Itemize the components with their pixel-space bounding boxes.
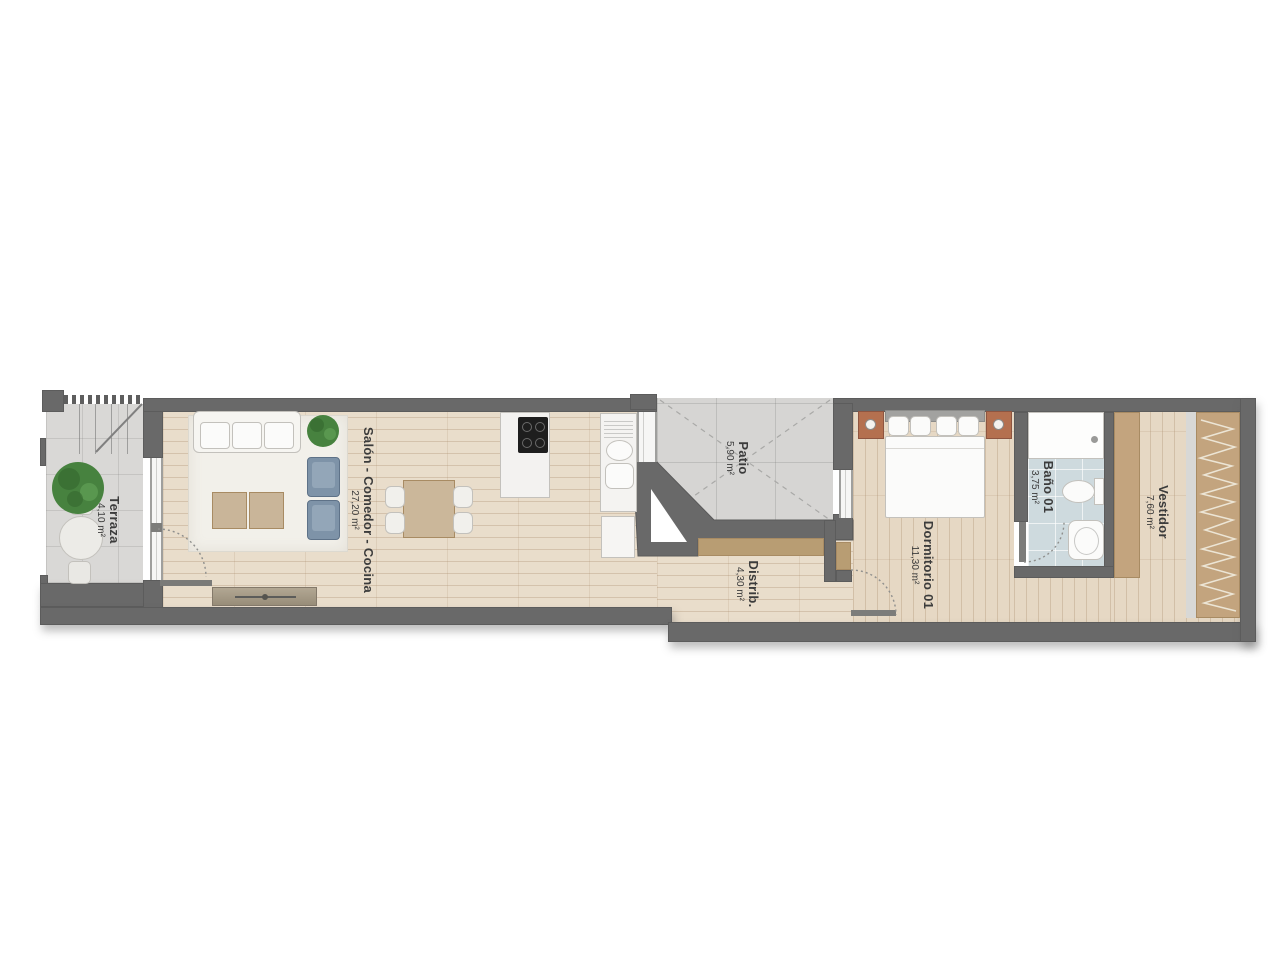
toilet — [1062, 480, 1095, 503]
bedroom-window — [839, 470, 853, 518]
dining-chair — [385, 486, 405, 508]
wall — [40, 583, 150, 607]
wall — [833, 403, 853, 470]
wall — [836, 570, 852, 582]
stairs — [64, 404, 143, 454]
wall — [40, 438, 46, 466]
pillow — [958, 416, 979, 436]
kitchen-sink — [606, 440, 633, 461]
bed — [885, 436, 985, 518]
basin-bowl — [1074, 527, 1099, 555]
lamp — [993, 419, 1004, 430]
sofa-cushion — [232, 422, 262, 449]
kitchen-window — [637, 412, 657, 462]
shower-drain — [1091, 436, 1098, 443]
dining-chair — [385, 512, 405, 534]
door-leaf — [851, 610, 896, 616]
lamp — [865, 419, 876, 430]
duvet-fold — [886, 448, 984, 449]
dining-table — [403, 480, 455, 538]
pillow — [888, 416, 909, 436]
threshold — [160, 580, 212, 586]
railing — [64, 395, 143, 404]
wall — [40, 607, 672, 625]
tv-stand — [262, 594, 268, 600]
toilet-tank — [1094, 478, 1104, 505]
wall — [1104, 412, 1114, 578]
wardrobe-shelf-strip — [1186, 412, 1196, 618]
patio-floor — [657, 398, 833, 522]
coffee-table — [212, 492, 247, 529]
floor-plan: Terraza 4,10 m² Salón - Comedor - Cocina… — [0, 0, 1280, 960]
terrace-table — [59, 516, 103, 560]
wall — [42, 390, 64, 412]
armchair — [307, 500, 340, 540]
door-leaf — [151, 523, 162, 532]
wall — [668, 622, 1255, 642]
wall — [1240, 398, 1256, 642]
kitchen-sink — [605, 463, 634, 489]
armchair — [307, 457, 340, 497]
wardrobe-left — [1114, 412, 1140, 578]
wall — [630, 394, 657, 410]
pillow — [910, 416, 931, 436]
washbasin — [1068, 520, 1104, 560]
terrace-chair — [68, 561, 91, 584]
burner — [535, 422, 545, 432]
tv-unit — [212, 587, 317, 606]
burner — [522, 438, 532, 448]
terrace-chair — [70, 492, 93, 515]
fridge — [601, 516, 635, 558]
wardrobe-right — [1196, 412, 1240, 618]
sofa-cushion — [200, 422, 230, 449]
terrace-door-window — [150, 458, 163, 580]
wall — [1014, 412, 1028, 522]
wall — [143, 398, 657, 412]
burner — [522, 422, 532, 432]
wall-niche — [836, 542, 851, 570]
wall — [824, 520, 836, 582]
drainer — [604, 418, 633, 438]
burner — [535, 438, 545, 448]
cooktop — [518, 417, 548, 453]
door-leaf — [1019, 522, 1026, 562]
pillow — [936, 416, 957, 436]
wall — [1014, 566, 1114, 578]
sofa-cushion — [264, 422, 294, 449]
dining-chair — [453, 486, 473, 508]
dining-chair — [453, 512, 473, 534]
hall-closet — [698, 538, 824, 556]
coffee-table — [249, 492, 284, 529]
